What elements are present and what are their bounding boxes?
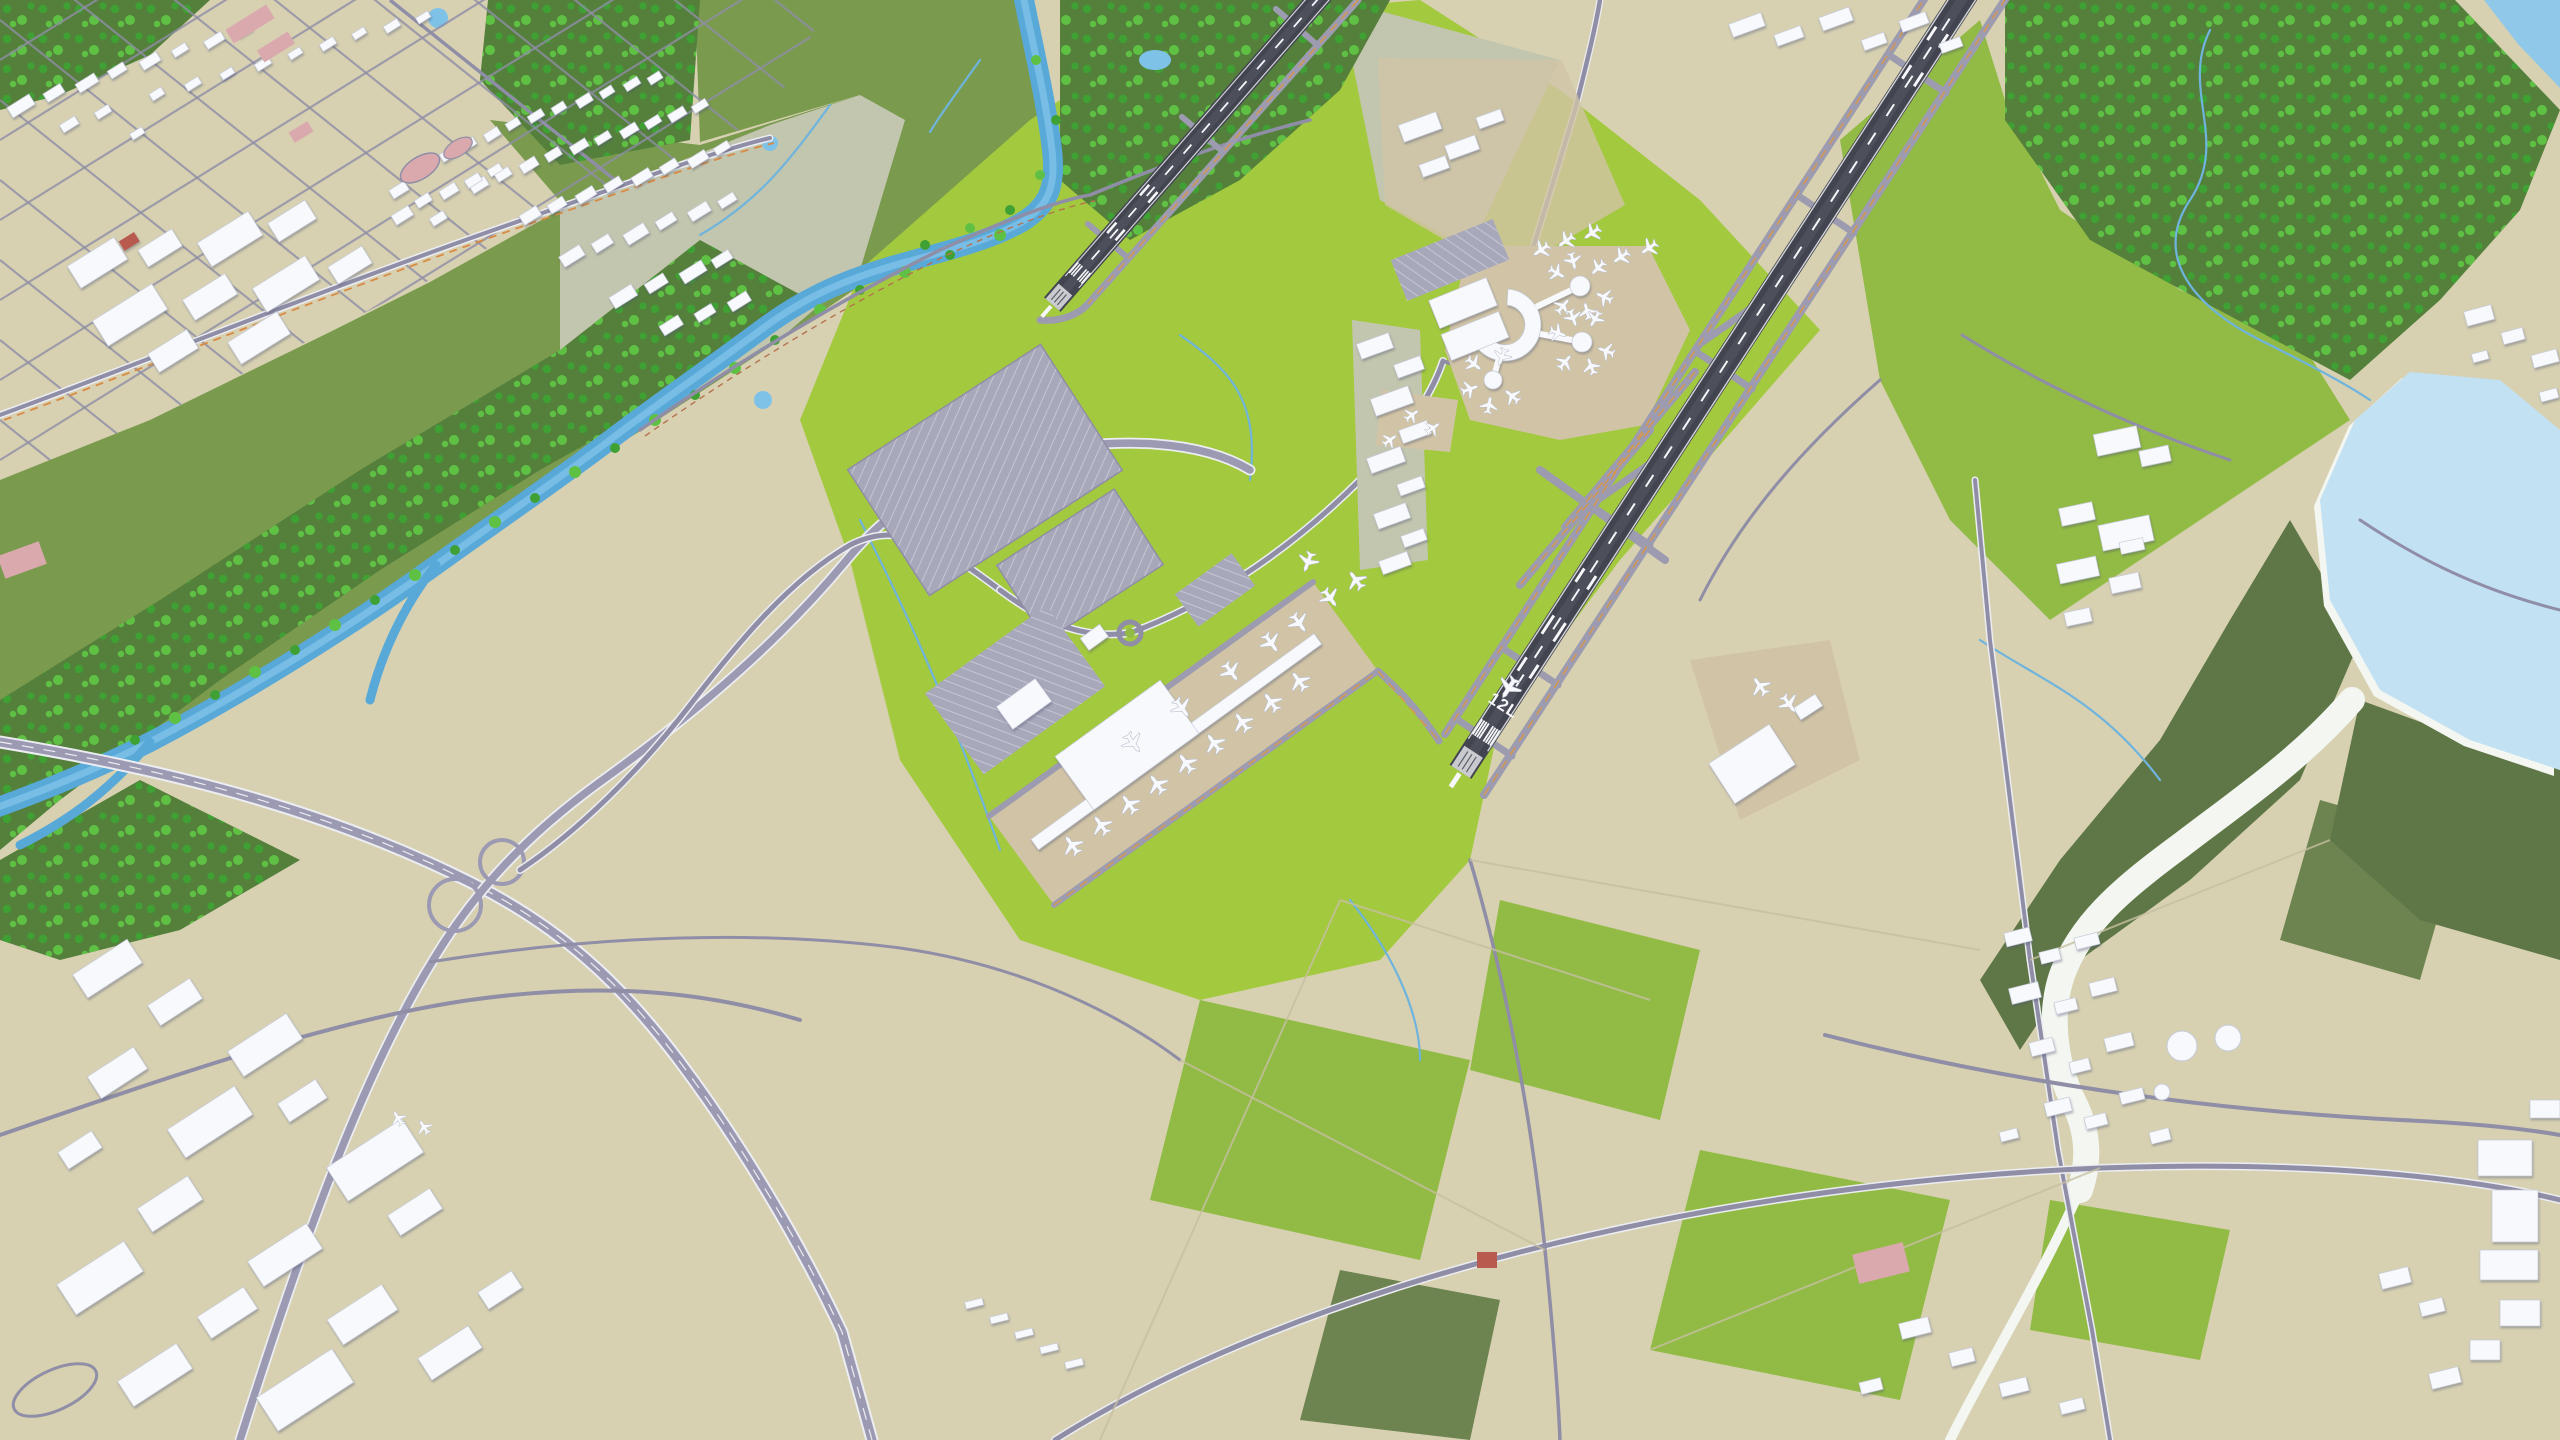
pond (754, 391, 772, 409)
storage-tank (2215, 1025, 2241, 1051)
storage-tank (2167, 1031, 2197, 1061)
salmon-building (1477, 1252, 1497, 1268)
airport-3d-map: 12L (0, 0, 2560, 1440)
satellite-concourse-1 (1570, 276, 1590, 296)
pond (1139, 50, 1171, 70)
satellite-concourse-3 (1484, 371, 1502, 389)
satellite-concourse-2 (1572, 332, 1592, 352)
storage-tank (2154, 1084, 2170, 1100)
